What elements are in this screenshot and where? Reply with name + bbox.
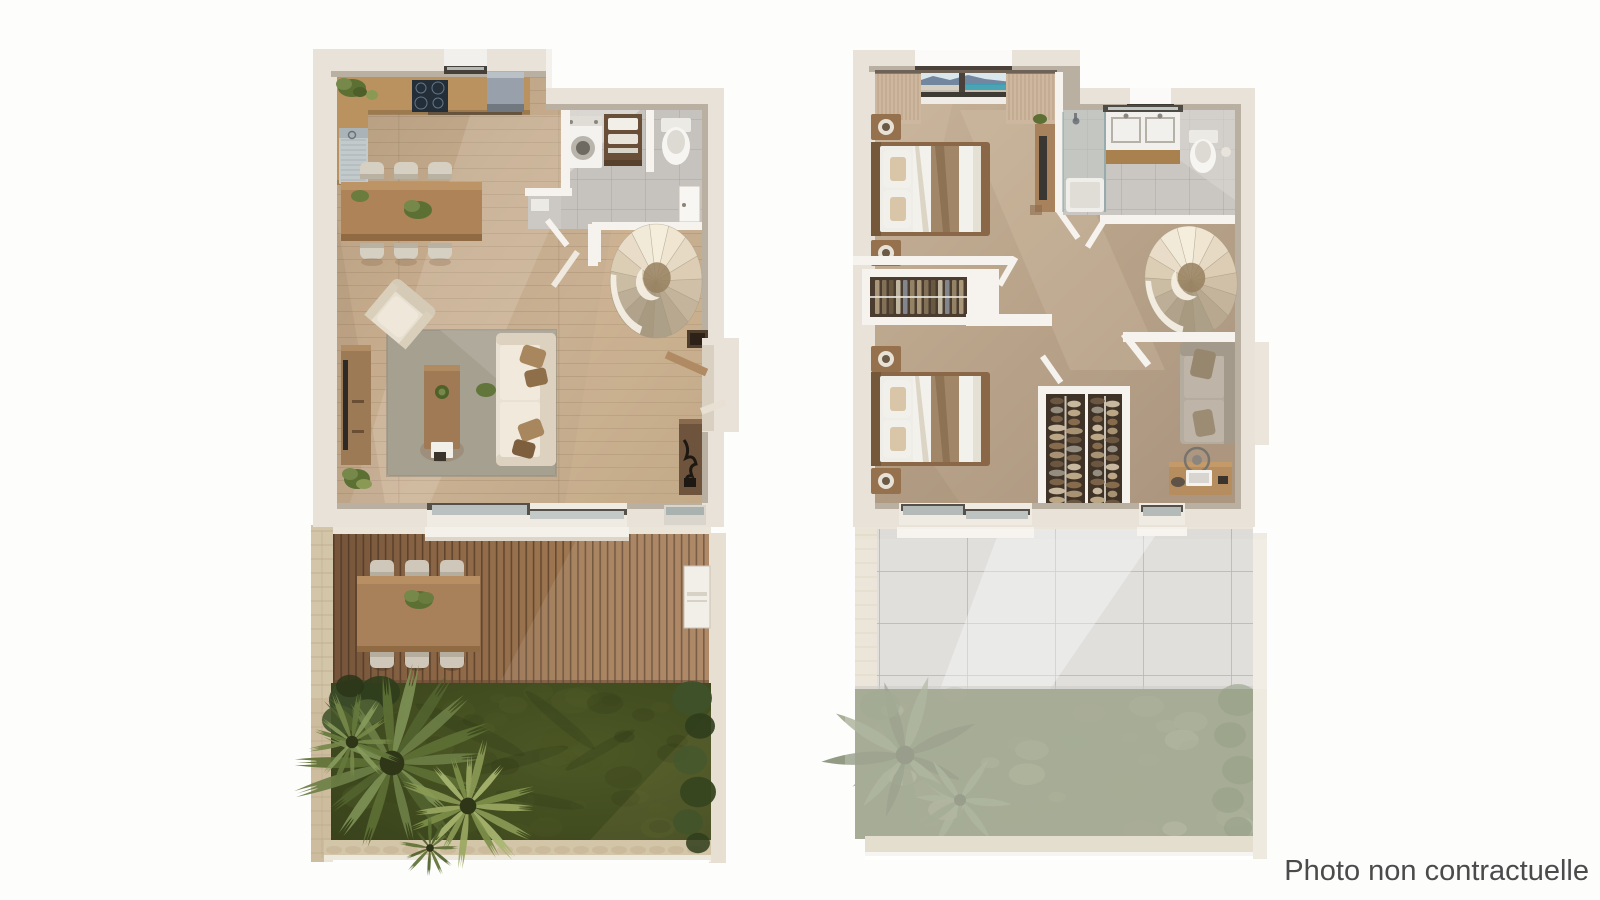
svg-text:Photo non contractuelle: Photo non contractuelle bbox=[1284, 855, 1589, 887]
